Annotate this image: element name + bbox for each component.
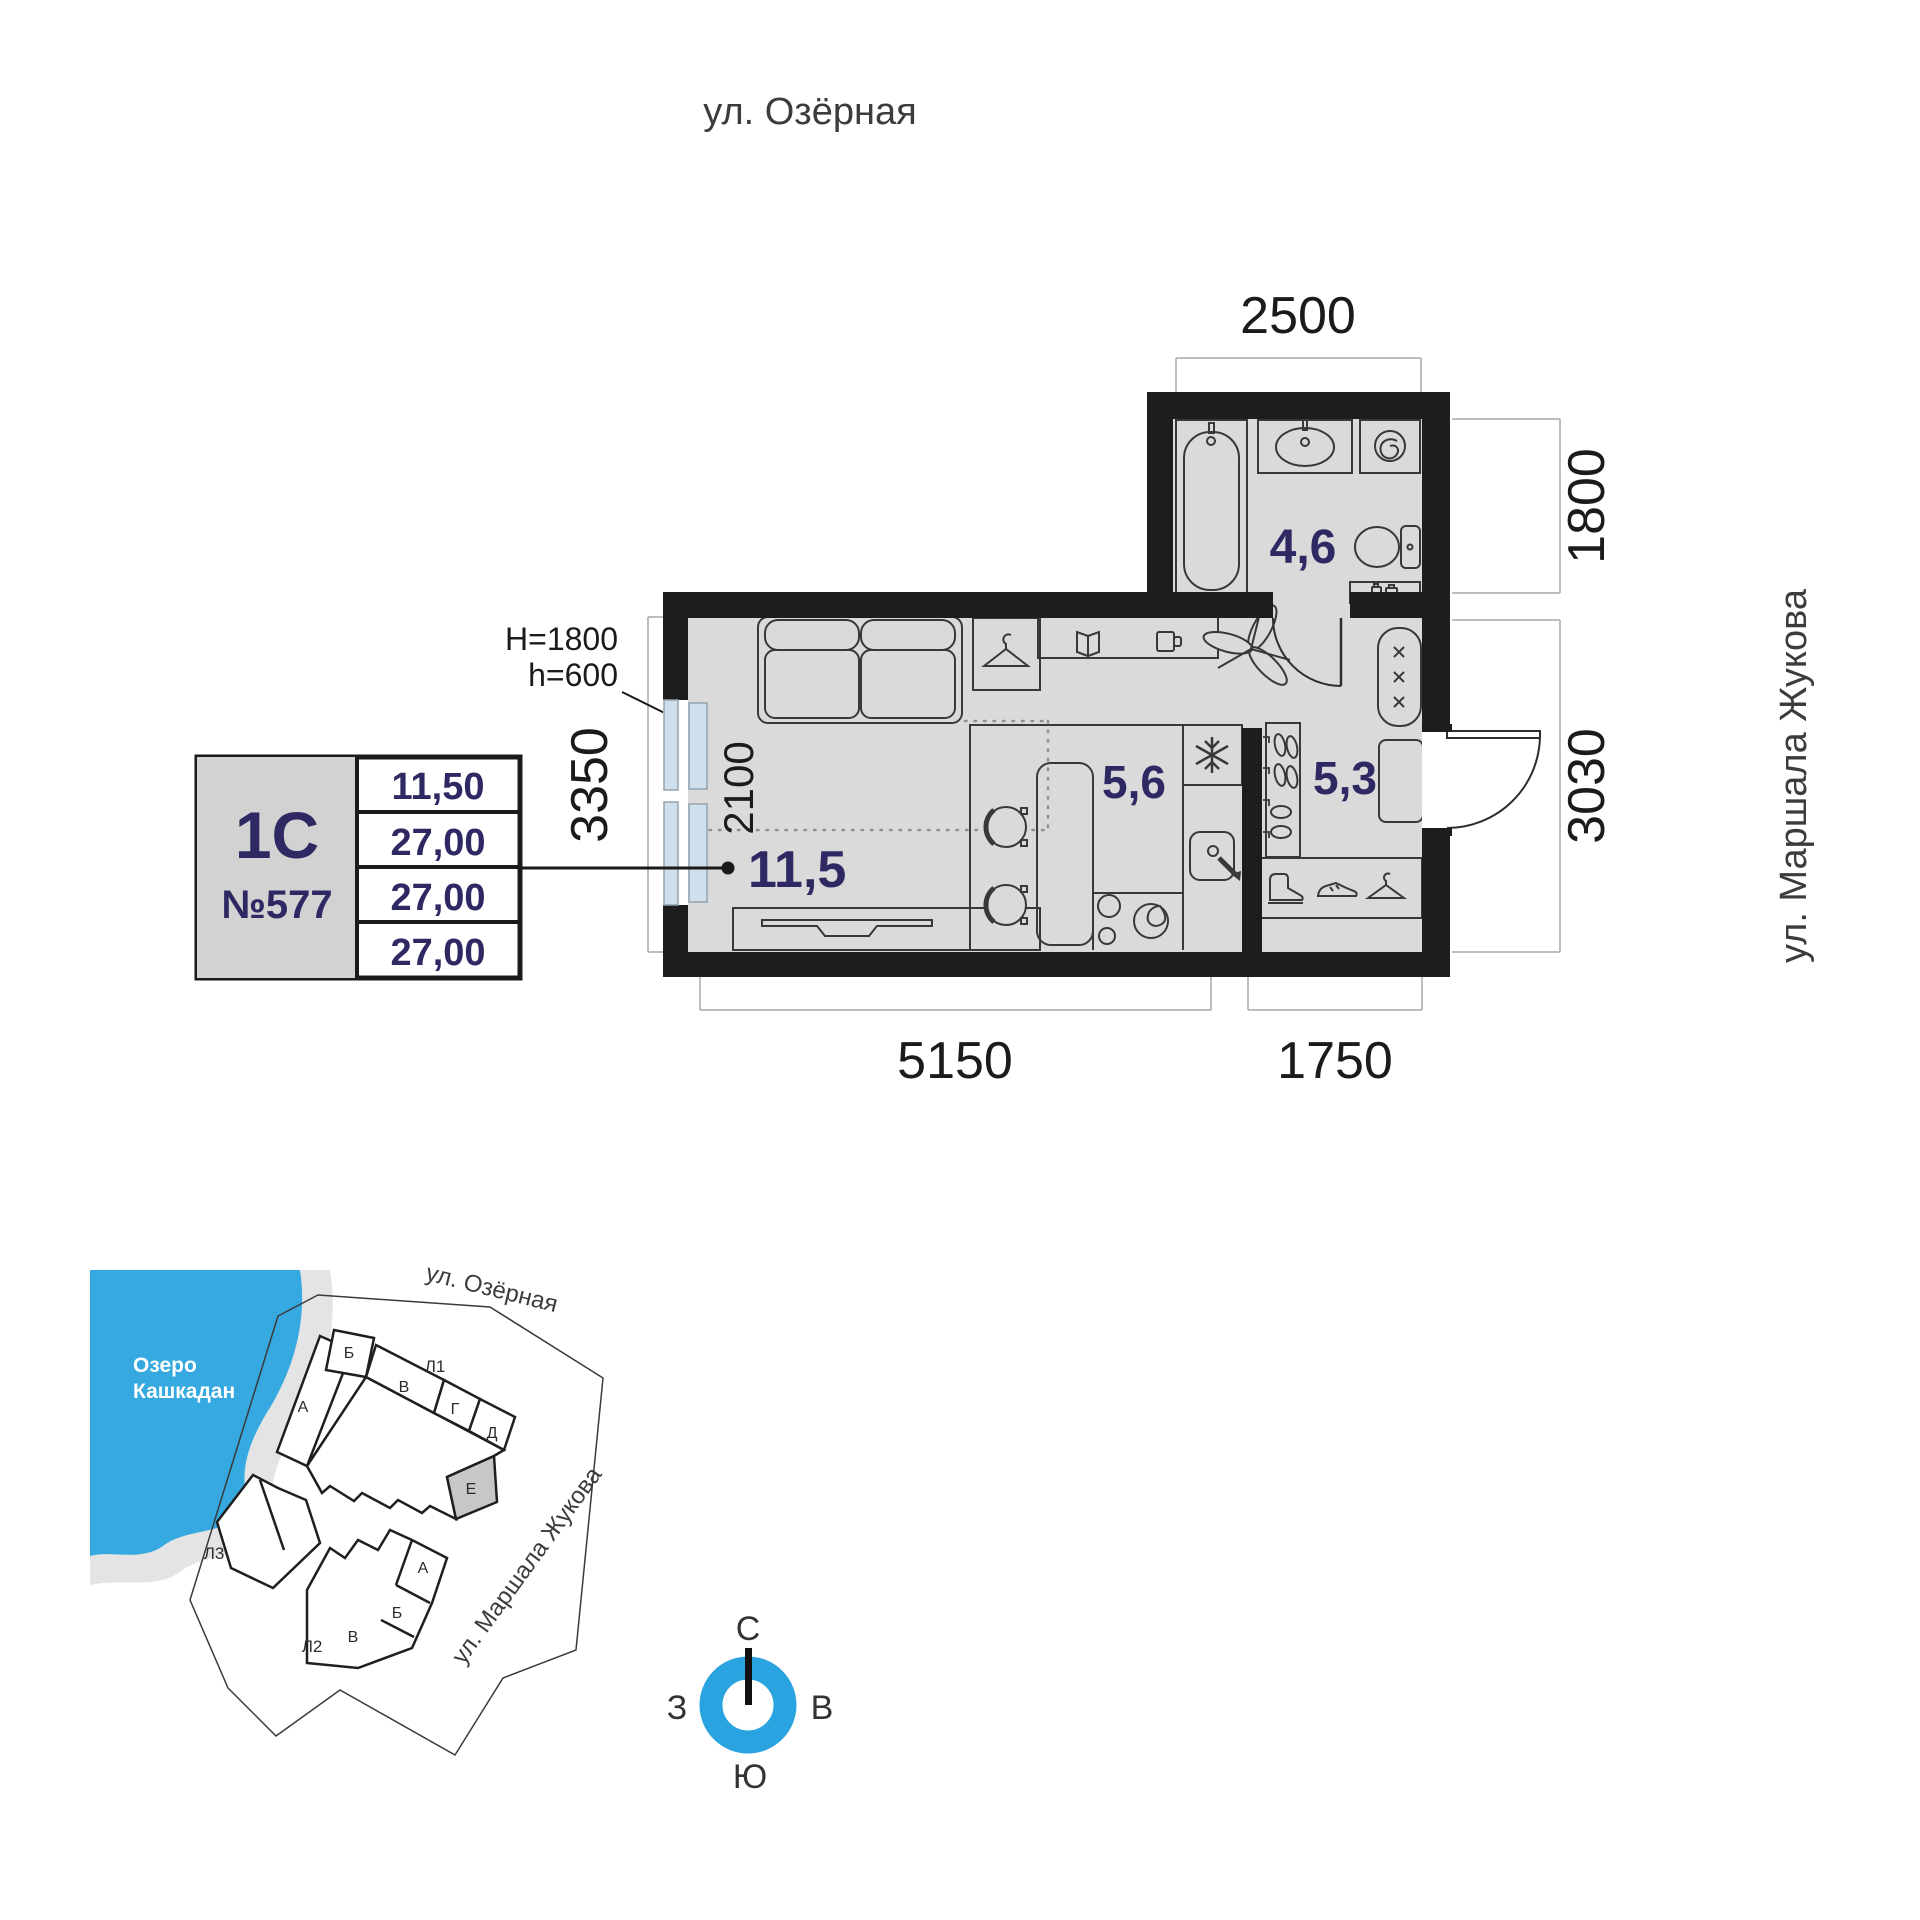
street-label-right: ул. Маршала Жукова xyxy=(1773,588,1815,963)
dimension-bottom-right: 1750 xyxy=(1277,1032,1393,1090)
building-l1 xyxy=(277,1330,515,1519)
site-plan: Озеро Кашкадан А Б В Г Д Е Л1 Л3 xyxy=(90,1259,608,1755)
compass-west: З xyxy=(667,1689,688,1727)
site-street-top: ул. Озёрная xyxy=(423,1259,560,1318)
site-building-label-l1: Л1 xyxy=(425,1357,446,1376)
dimension-bed-zone: 2100 xyxy=(715,741,762,834)
site-section-label: Б xyxy=(392,1605,403,1622)
site-section-label: Е xyxy=(466,1481,477,1498)
lake-label-line2: Кашкадан xyxy=(133,1380,235,1403)
entrance-door xyxy=(1422,724,1540,836)
site-section-label: А xyxy=(298,1399,309,1416)
site-section-label: В xyxy=(348,1629,359,1646)
unit-area-row: 11,50 xyxy=(392,766,485,808)
unit-area-row: 27,00 xyxy=(390,932,485,974)
site-section-label: А xyxy=(418,1560,429,1577)
floor-plan: 2100 xyxy=(663,392,1540,977)
area-label-bathroom: 4,6 xyxy=(1270,521,1337,574)
area-label-kitchen: 5,6 xyxy=(1102,756,1166,808)
floor-bathroom xyxy=(1173,419,1422,618)
unit-card-leader-dot xyxy=(722,862,735,875)
dimension-bottom-left: 5150 xyxy=(897,1032,1013,1090)
drawing: ул. Озёрная ул. Маршала Жукова 2500 1800… xyxy=(0,0,1920,1920)
site-section-label: В xyxy=(399,1379,410,1396)
compass-east: В xyxy=(811,1689,834,1727)
lake-label-line1: Озеро xyxy=(133,1354,197,1377)
dimension-left: 3350 xyxy=(561,727,619,843)
compass: С В Ю З xyxy=(667,1610,834,1796)
unit-area-row: 27,00 xyxy=(390,822,485,864)
sofa xyxy=(758,617,962,723)
area-label-hall: 5,3 xyxy=(1313,752,1377,804)
site-section-label: Г xyxy=(451,1401,460,1418)
compass-south: Ю xyxy=(733,1758,767,1796)
unit-card: 1С №577 11,50 27,00 27,00 27,00 xyxy=(197,757,735,978)
chair xyxy=(986,885,1027,925)
street-label-top: ул. Озёрная xyxy=(703,91,916,133)
window-note-h: h=600 xyxy=(528,657,618,693)
site-building-label-l2: Л2 xyxy=(302,1637,323,1656)
unit-type: 1С xyxy=(235,798,319,872)
page: ул. Озёрная ул. Маршала Жукова 2500 1800… xyxy=(0,0,1920,1920)
building-l2 xyxy=(307,1530,447,1668)
site-building-label-l3: Л3 xyxy=(204,1544,225,1563)
dimension-top: 2500 xyxy=(1240,287,1356,345)
compass-needle xyxy=(745,1648,752,1705)
compass-north: С xyxy=(736,1610,761,1648)
chair xyxy=(986,807,1027,847)
unit-area-row: 27,00 xyxy=(390,877,485,919)
unit-number: №577 xyxy=(221,883,332,927)
toilet xyxy=(1355,526,1420,568)
site-section-label: Б xyxy=(344,1345,355,1362)
site-section-label: Д xyxy=(487,1425,498,1442)
area-label-living: 11,5 xyxy=(748,841,846,899)
window-note-H: H=1800 xyxy=(505,621,618,657)
dimension-right-top: 1800 xyxy=(1558,448,1616,564)
dimension-right-bottom: 3030 xyxy=(1558,728,1616,844)
